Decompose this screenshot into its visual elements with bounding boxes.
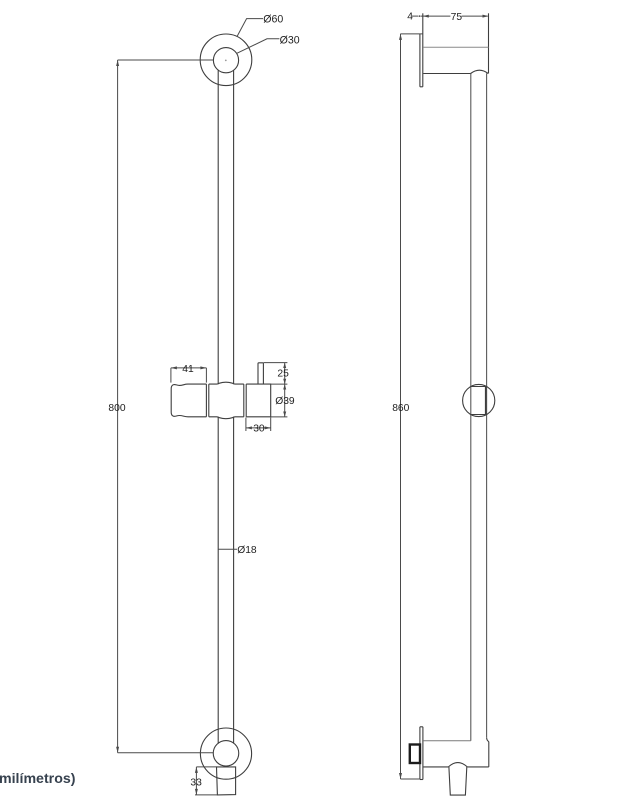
- svg-text:Ø30: Ø30: [280, 35, 300, 47]
- svg-text:860: 860: [392, 403, 409, 414]
- svg-text:41: 41: [182, 364, 194, 375]
- svg-text:Ø60: Ø60: [263, 14, 283, 26]
- svg-text:4: 4: [407, 12, 413, 23]
- svg-text:Ø39: Ø39: [275, 396, 295, 407]
- svg-text:75: 75: [451, 12, 463, 23]
- svg-text:33: 33: [190, 778, 202, 789]
- svg-text:Ø18: Ø18: [237, 545, 257, 556]
- svg-text:30: 30: [253, 424, 265, 435]
- svg-text:25: 25: [277, 368, 289, 379]
- svg-text:800: 800: [108, 403, 125, 414]
